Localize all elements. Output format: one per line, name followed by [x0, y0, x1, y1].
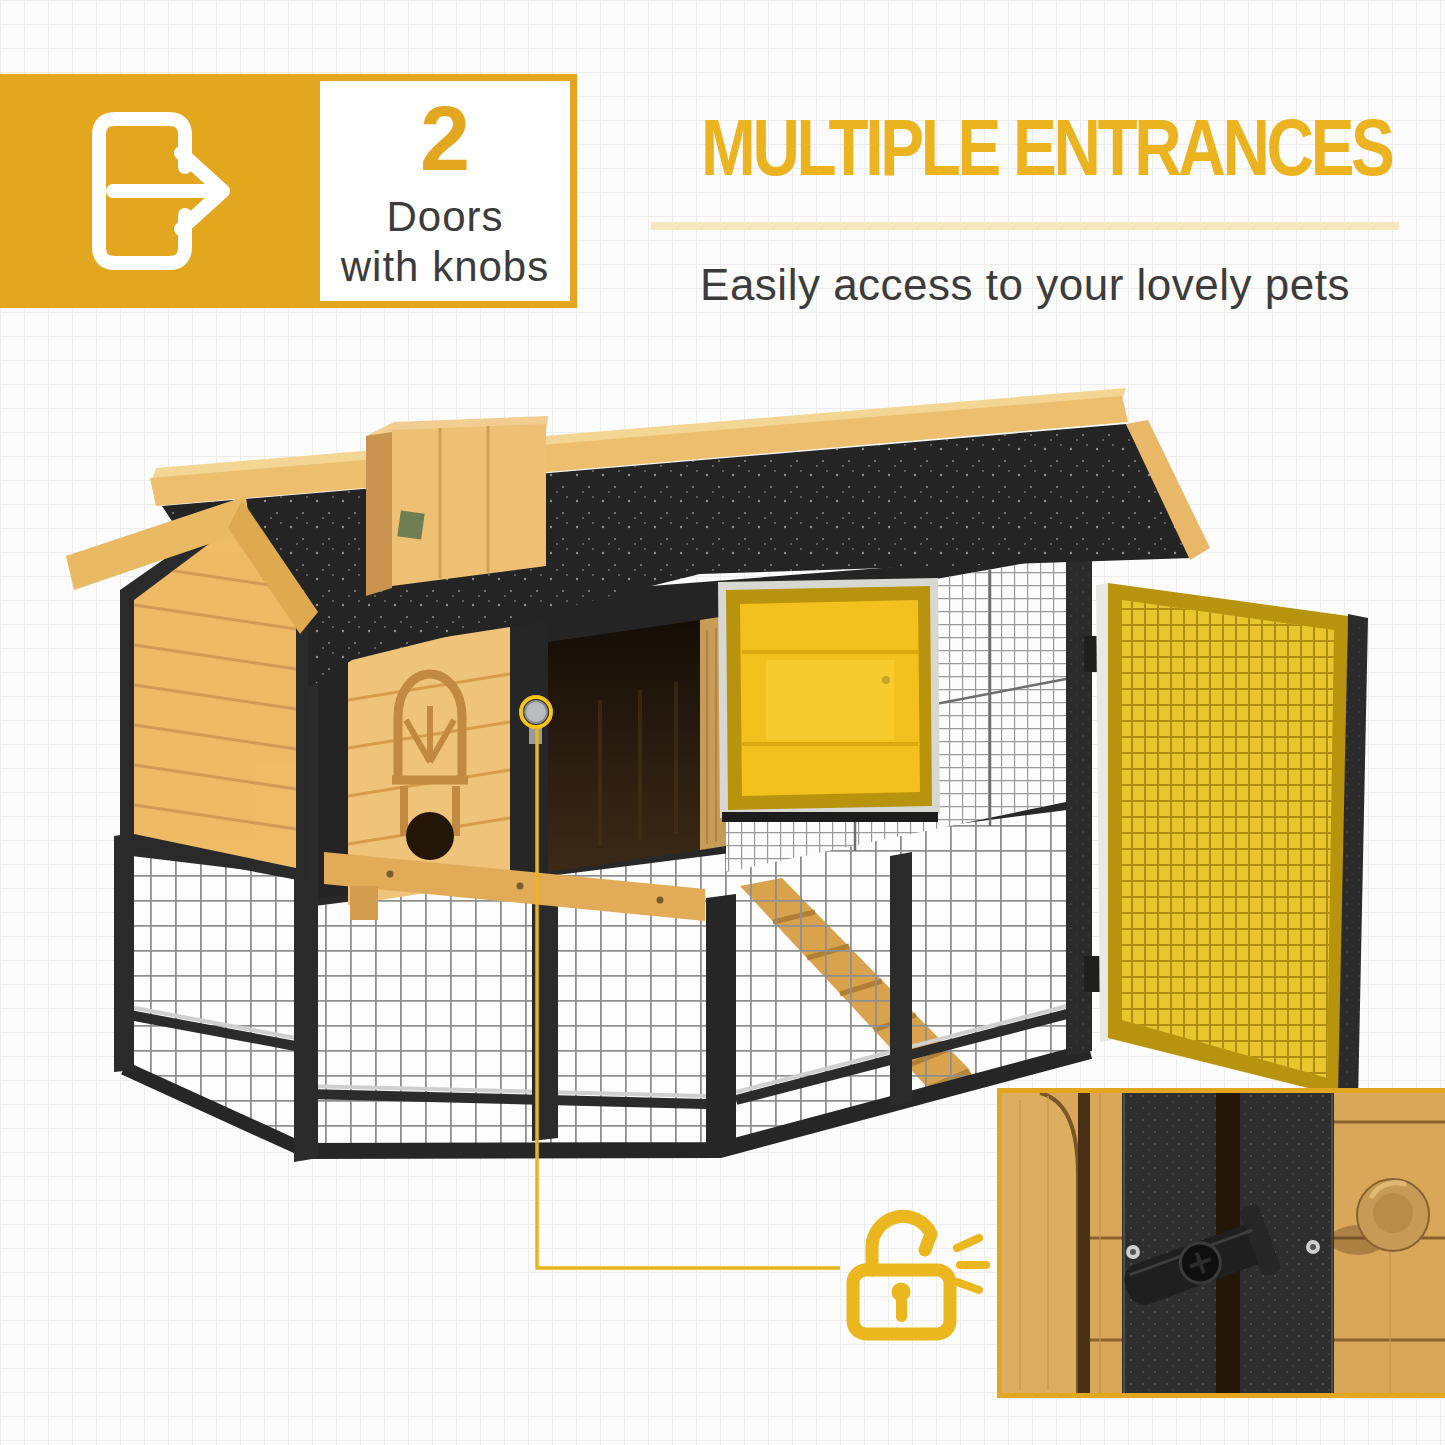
- roof-box: [366, 416, 548, 596]
- roof-box-latch: [397, 510, 424, 539]
- highlighted-flip-door: [718, 578, 940, 822]
- open-mesh-door: [1084, 583, 1368, 1102]
- infographic-canvas: 2 Doors with knobs MULTIPLE ENTRANCES Ea…: [0, 0, 1445, 1445]
- back-left-post: [114, 833, 134, 1072]
- door-stile: [510, 621, 548, 884]
- sound-dashes: [957, 1238, 986, 1290]
- latch-closeup-inset: [1000, 1091, 1445, 1396]
- hutch: [66, 388, 1210, 1162]
- inset-wood-board: [1002, 1093, 1078, 1393]
- hutch-illustration: [0, 0, 1445, 1445]
- door-knob: [525, 701, 547, 723]
- front-mid-post: [706, 894, 736, 1156]
- run-left-face: [114, 833, 306, 1151]
- door-hole: [406, 812, 454, 860]
- doorway-opening: [548, 616, 726, 872]
- padlock-unlocked-icon: [853, 1216, 950, 1334]
